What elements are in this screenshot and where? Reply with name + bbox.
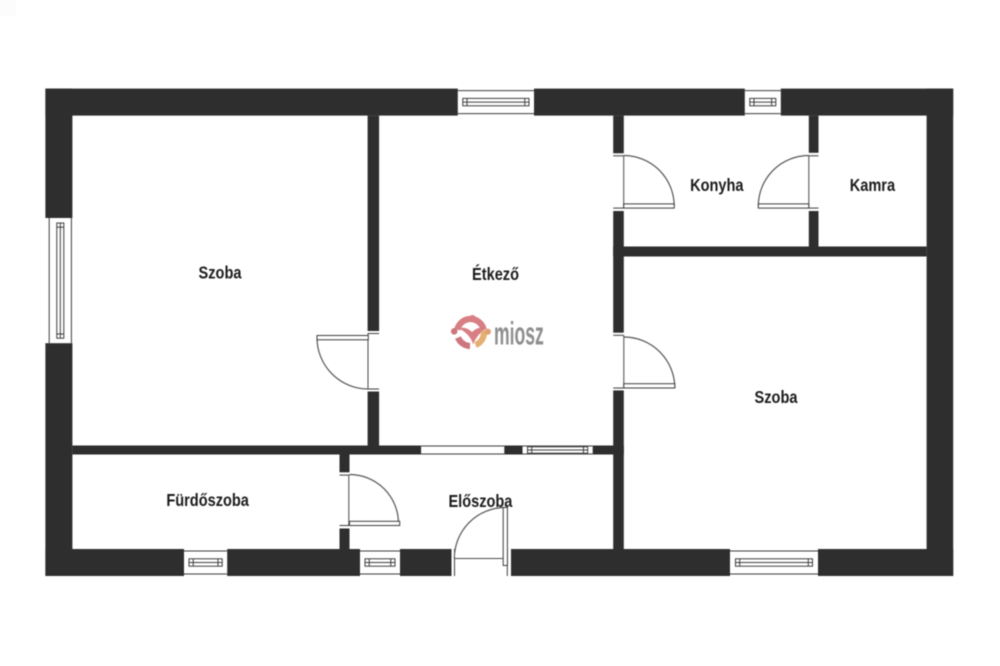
- svg-text:Étkező: Étkező: [472, 263, 519, 284]
- svg-text:Előszoba: Előszoba: [448, 491, 513, 511]
- svg-text:Szoba: Szoba: [755, 388, 799, 408]
- svg-text:Kamra: Kamra: [850, 175, 896, 195]
- svg-text:Fürdőszoba: Fürdőszoba: [166, 490, 249, 510]
- svg-text:miosz: miosz: [494, 317, 544, 352]
- svg-text:Konyha: Konyha: [690, 175, 744, 195]
- svg-text:Szoba: Szoba: [199, 263, 243, 283]
